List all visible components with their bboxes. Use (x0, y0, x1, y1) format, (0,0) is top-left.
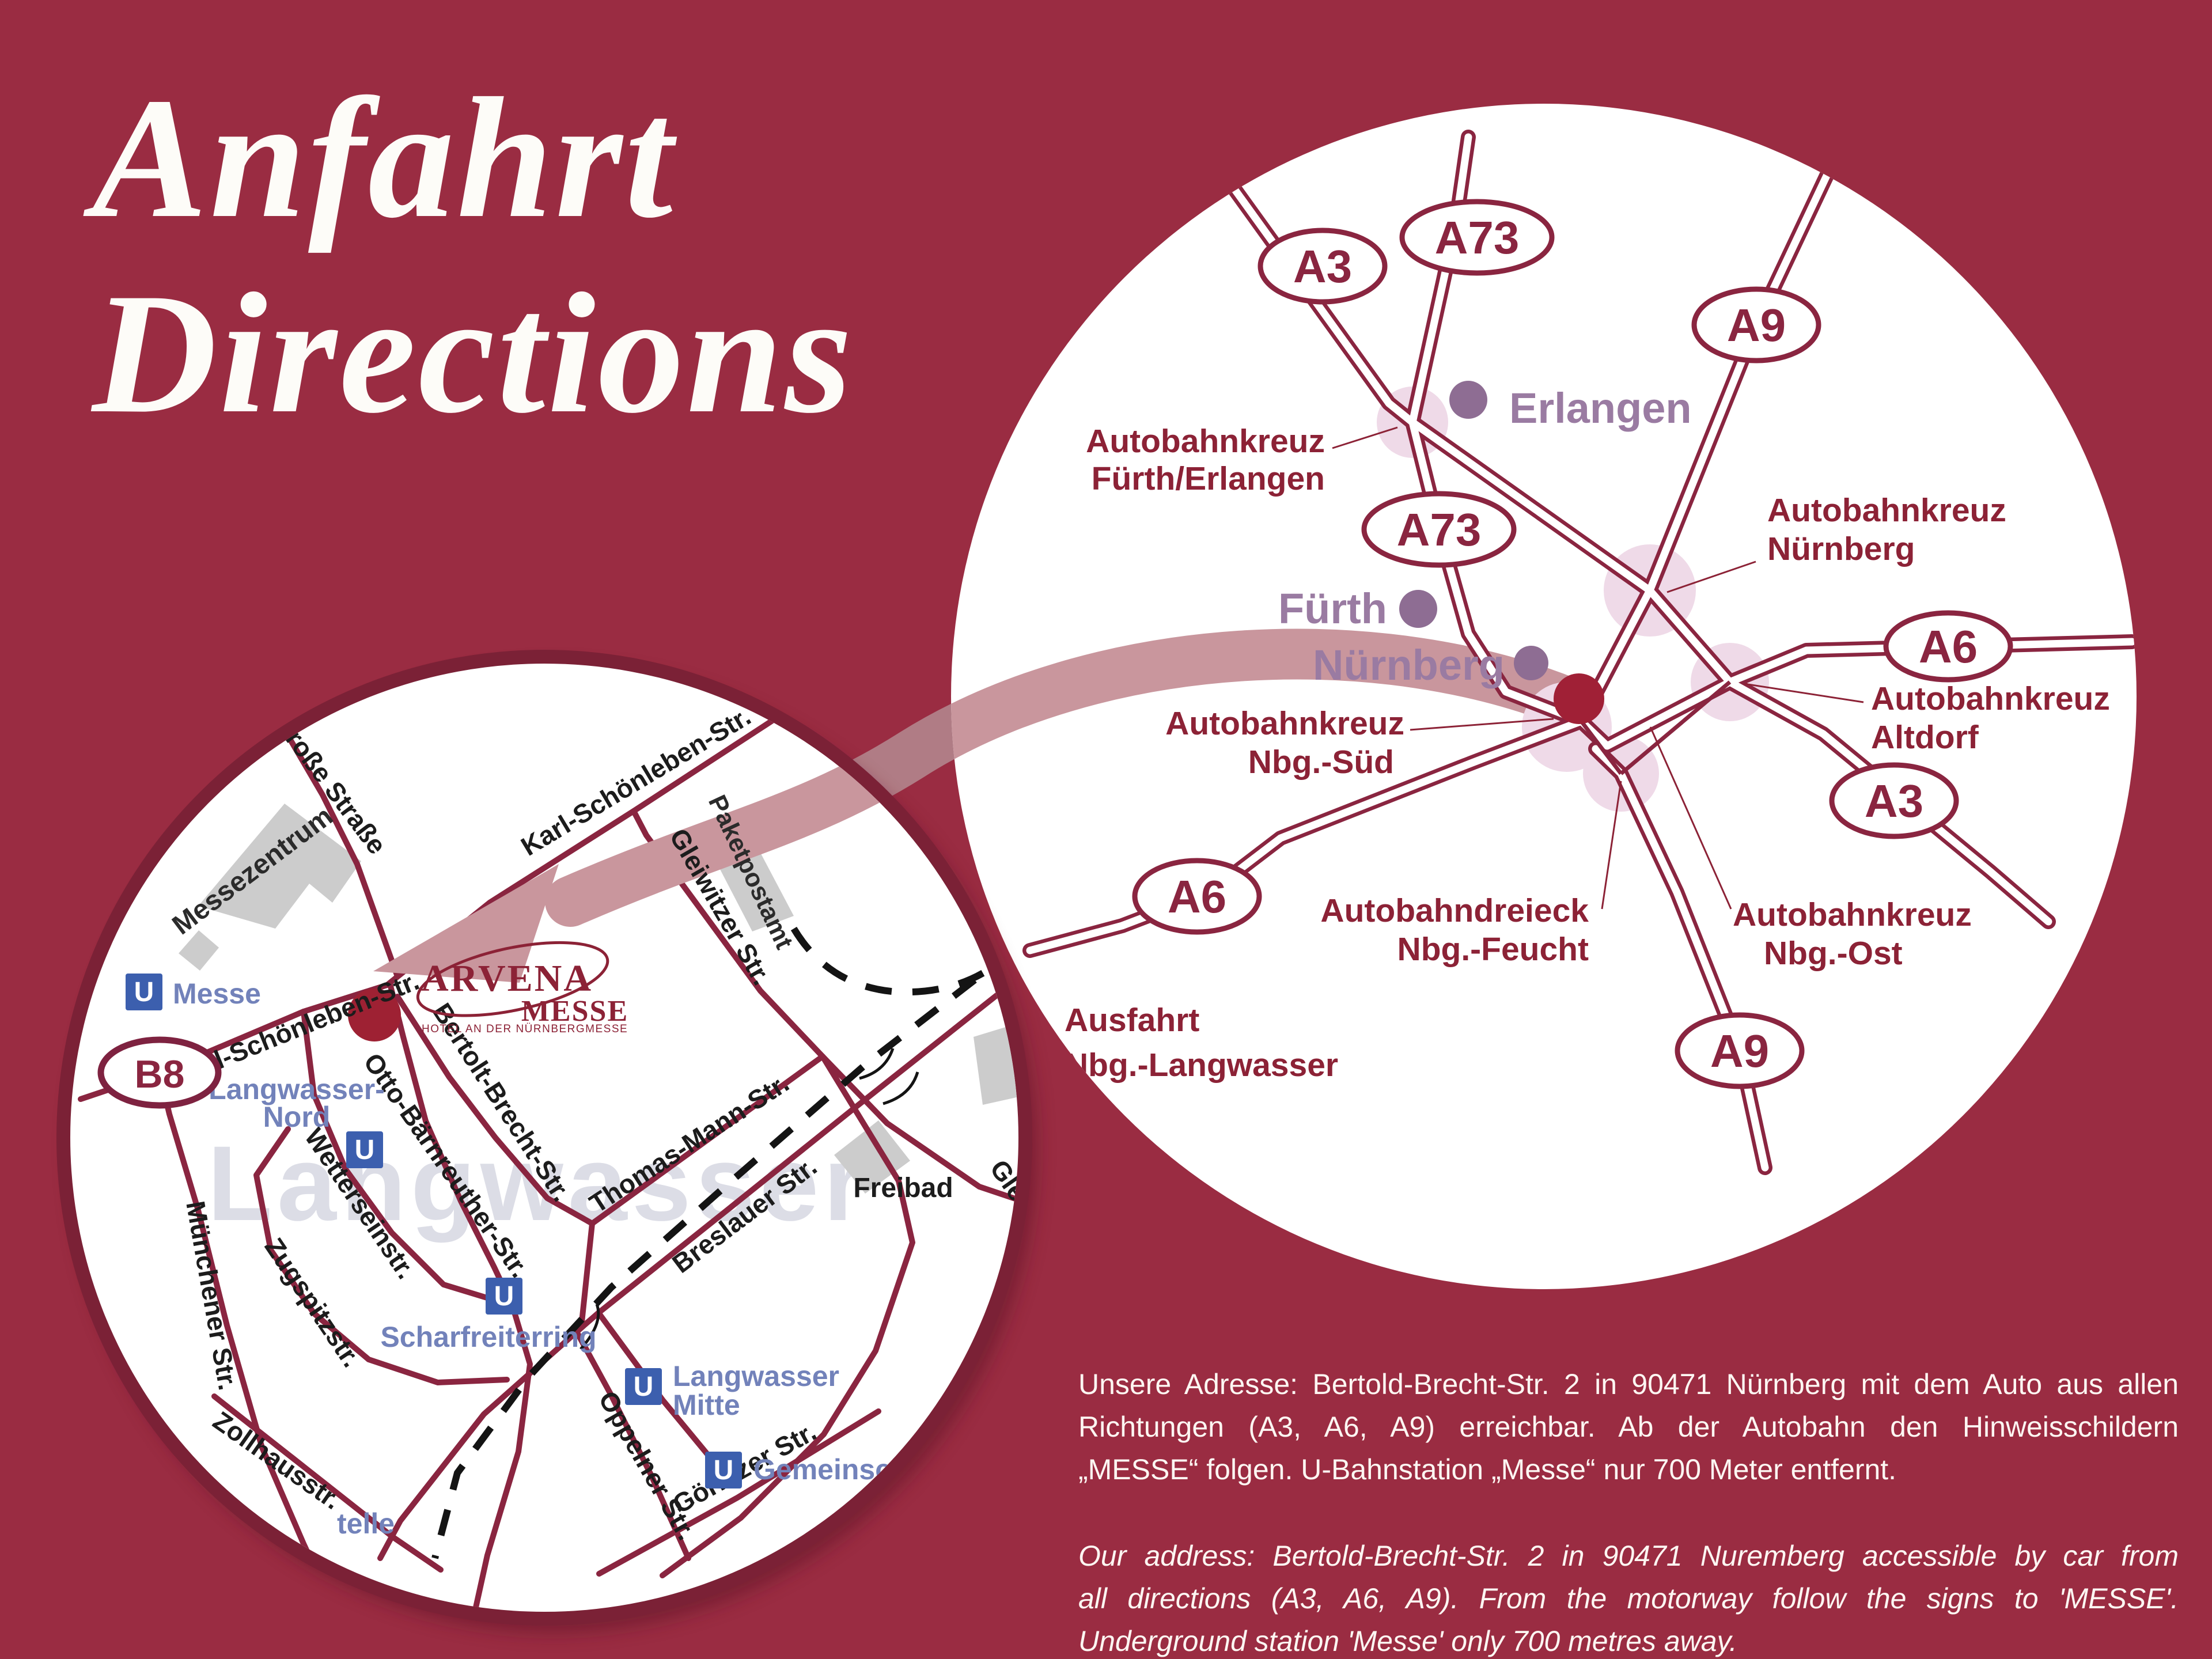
badge-text: A73 (1397, 504, 1482, 555)
ubahn-icon-letter: U (494, 1281, 514, 1312)
address-en-line: all directions (A3, A6, A9). From the mo… (1078, 1577, 2179, 1620)
fuerth-dot (1399, 590, 1437, 628)
station-label: Nord (263, 1101, 331, 1133)
junction-label: Autobahnkreuz (1767, 492, 2006, 529)
ubahn-icon-letter: U (355, 1135, 375, 1165)
badge-text: A3 (1293, 241, 1352, 292)
badge-text: A73 (1435, 212, 1520, 263)
badge-b8: B8 (101, 1040, 218, 1105)
junction-label: Nürnberg (1767, 531, 1915, 567)
poster: Erlangen Fürth Nürnberg Autobahnkreuz Fü… (0, 0, 2212, 1659)
badge-text: A9 (1727, 300, 1786, 351)
junction-label: Autobahnkreuz (1733, 896, 1972, 933)
station-messe: U Messe (126, 974, 261, 1010)
city-label-nuernberg: Nürnberg (1313, 641, 1505, 689)
badge-text: A3 (1865, 775, 1923, 827)
title-line-en: Directions (92, 256, 854, 451)
station-label: Scharfreiterring (380, 1321, 596, 1353)
address-german: Unsere Adresse: Bertold-Brecht-Str. 2 in… (1078, 1363, 2179, 1491)
station-label-partial: telle (337, 1508, 395, 1540)
badge-a73-mid: A73 (1364, 494, 1514, 565)
junction-label: Nbg.-Feucht (1397, 931, 1589, 968)
place-label-freibad: Freibad (853, 1173, 953, 1203)
exit-label: Ausfahrt (1065, 1002, 1199, 1039)
junction-label: Autobahnkreuz (1086, 423, 1325, 460)
station-label: Mitte (673, 1389, 740, 1421)
hotel-location-dot-overview (1554, 673, 1604, 724)
junction-label: Nbg.-Ost (1764, 935, 1903, 972)
badge-text: B8 (135, 1052, 185, 1096)
logo-tagline: HOTEL AN DER NÜRNBERGMESSE (422, 1023, 628, 1035)
badge-text: A6 (1919, 621, 1978, 672)
page-title: Anfahrt Directions (92, 60, 854, 451)
junction-label: Autobahnkreuz (1871, 680, 2110, 717)
badge-a6-west: A6 (1135, 861, 1259, 932)
address-de-line: Unsere Adresse: Bertold-Brecht-Str. 2 in… (1078, 1363, 2179, 1406)
badge-text: A6 (1168, 871, 1226, 922)
erlangen-dot (1449, 381, 1487, 419)
junction-label: Altdorf (1871, 719, 1979, 756)
badge-a3-north: A3 (1260, 230, 1385, 302)
badge-a73-north: A73 (1402, 202, 1552, 273)
ubahn-icon-letter: U (714, 1455, 734, 1486)
address-en-line: Our address: Bertold-Brecht-Str. 2 in 90… (1078, 1535, 2179, 1577)
badge-text: A9 (1710, 1025, 1769, 1077)
address-de-line: „MESSE“ folgen. U-Bahnstation „Messe“ nu… (1078, 1448, 2179, 1491)
nuernberg-dot (1514, 646, 1548, 680)
address-english: Our address: Bertold-Brecht-Str. 2 in 90… (1078, 1535, 2179, 1659)
badge-a9-south: A9 (1677, 1015, 1802, 1086)
ubahn-icon-letter: U (634, 1372, 654, 1402)
junction-label: Nbg.-Süd (1248, 744, 1394, 781)
city-label-erlangen: Erlangen (1509, 384, 1692, 432)
title-line-de: Anfahrt (92, 60, 854, 256)
logo-name: ARVENA (421, 957, 593, 999)
junction-label: Fürth/Erlangen (1092, 460, 1325, 497)
junction-label: Autobahndreieck (1320, 892, 1589, 929)
badge-a9-north: A9 (1694, 289, 1819, 361)
city-label-fuerth: Fürth (1278, 585, 1387, 632)
ubahn-icon-letter: U (134, 977, 154, 1007)
badge-a3-southeast: A3 (1832, 765, 1956, 836)
address-de-line: Richtungen (A3, A6, A9) erreichbar. Ab d… (1078, 1406, 2179, 1448)
badge-a6-east: A6 (1886, 613, 2010, 680)
station-label: Langwasser (673, 1360, 839, 1392)
junction-label: Autobahnkreuz (1165, 705, 1404, 742)
station-label: Messe (173, 978, 261, 1010)
address-en-line: Underground station 'Messe' only 700 met… (1078, 1620, 2179, 1659)
exit-label: Nbg.-Langwasser (1065, 1047, 1338, 1084)
